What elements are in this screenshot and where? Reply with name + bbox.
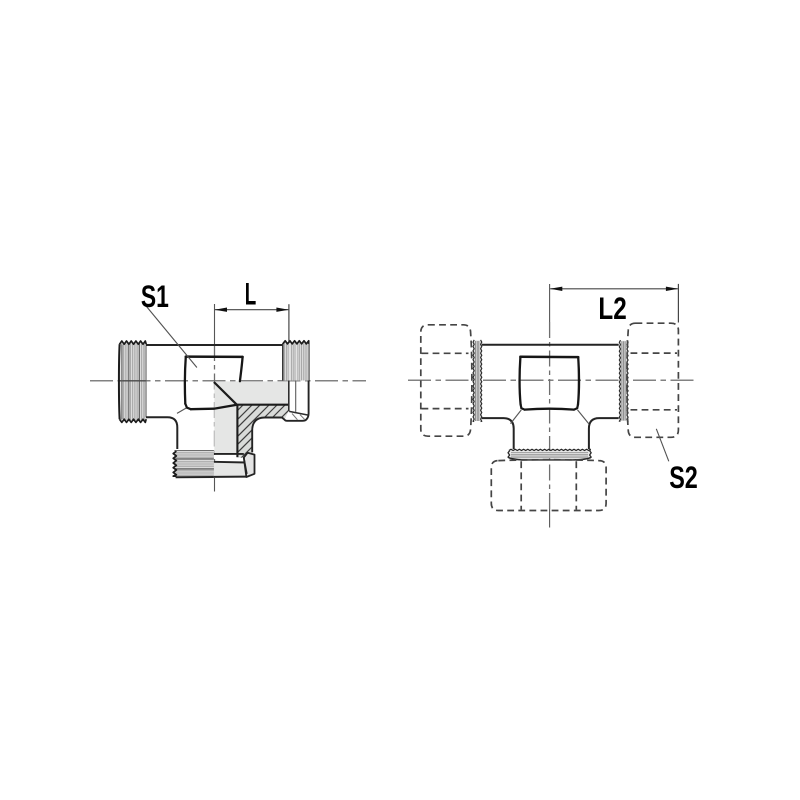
svg-text:L2: L2 xyxy=(598,290,626,326)
svg-text:S2: S2 xyxy=(669,459,698,495)
svg-text:S1: S1 xyxy=(141,278,169,314)
svg-text:L: L xyxy=(245,275,256,311)
